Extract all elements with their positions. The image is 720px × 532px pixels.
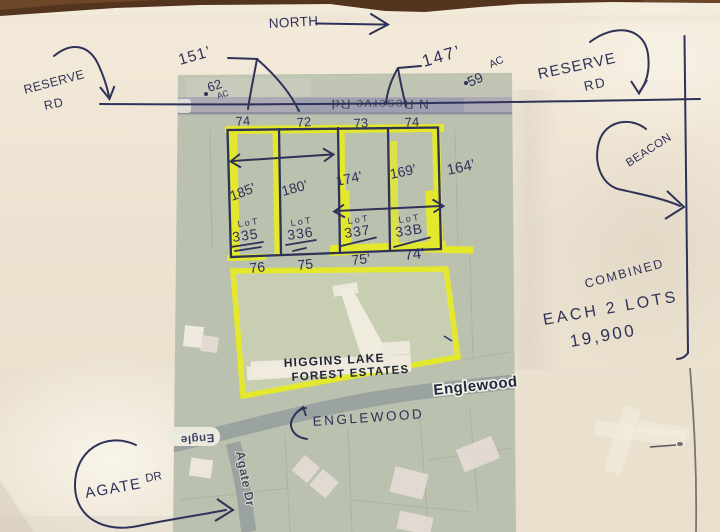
svg-text:76: 76 bbox=[249, 258, 266, 276]
svg-text:72: 72 bbox=[296, 114, 311, 130]
svg-text:74: 74 bbox=[404, 114, 419, 130]
svg-text:74’: 74’ bbox=[404, 245, 426, 264]
svg-text:74: 74 bbox=[235, 113, 250, 129]
svg-text:73: 73 bbox=[353, 115, 368, 131]
svg-text:NORTH: NORTH bbox=[268, 13, 318, 31]
svg-text:75: 75 bbox=[297, 255, 314, 273]
svg-text:Engle: Engle bbox=[180, 431, 215, 445]
svg-text:75’: 75’ bbox=[351, 250, 371, 268]
